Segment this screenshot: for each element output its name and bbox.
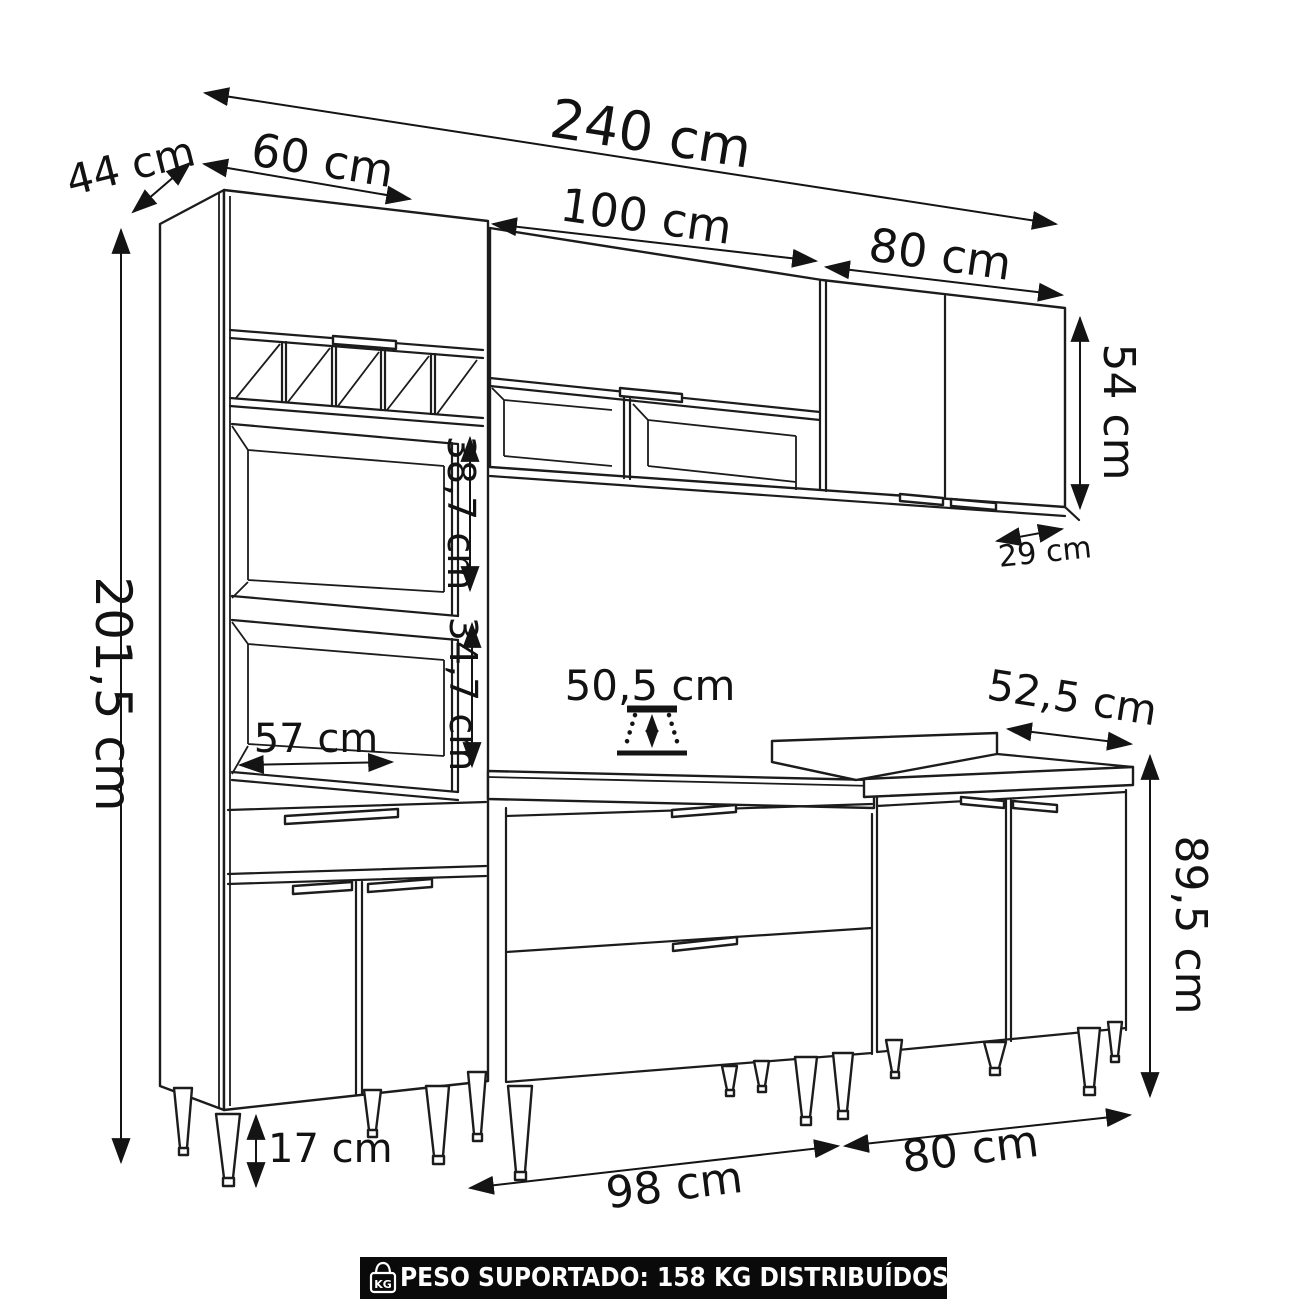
dimension-niche-width: 57 cm [240, 716, 392, 765]
dimension-niche-upper-height: 38,7 cm [439, 436, 483, 591]
dimension-legs-height: 17 cm [256, 1116, 393, 1186]
dimension-total-height: 201,5 cm [84, 230, 142, 1162]
height-adjust-icon [617, 709, 687, 753]
middle-countertop [488, 771, 874, 808]
dim-right-counter-label: 52,5 cm [984, 660, 1160, 735]
dim-total-width-label: 240 cm [546, 87, 756, 181]
dim-niche-lower-label: 34,7 cm [441, 617, 485, 772]
kg-icon-text: KG [374, 1278, 392, 1291]
right-door-handle-right [1013, 801, 1057, 812]
dim-niche-width-label: 57 cm [254, 716, 379, 762]
dimension-base-height: 89,5 cm [1150, 756, 1216, 1096]
backsplash [772, 733, 997, 780]
dimension-right-counter-depth: 52,5 cm [984, 660, 1160, 744]
tall-cabinet-side-panel [160, 190, 224, 1110]
dimension-wall-height: 54 cm [1080, 318, 1144, 508]
dim-total-height-label: 201,5 cm [84, 576, 142, 811]
middle-drawer-splits [506, 804, 872, 952]
supported-weight-text: PESO SUPORTADO: 158 KG DISTRIBUÍDOS [400, 1263, 949, 1293]
dim-wall-height-label: 54 cm [1093, 343, 1144, 480]
right-body [877, 790, 1126, 1052]
dimension-tall-depth: 44 cm [61, 126, 200, 212]
dimension-base-right-width: 80 cm [845, 1115, 1130, 1183]
dimension-wall-depth: 29 cm [997, 529, 1094, 575]
diagram-canvas: 240 cm 44 cm 60 cm 100 cm 80 cm 54 cm 29… [0, 0, 1300, 1300]
dim-base-mid-width-label: 98 cm [603, 1152, 745, 1219]
dim-tall-depth-label: 44 cm [61, 126, 200, 205]
dim-base-right-width-label: 80 cm [899, 1116, 1041, 1183]
dim-mid-counter-label: 50,5 cm [565, 661, 736, 710]
middle-drawer-handle-top [672, 805, 736, 817]
dimension-tall-width: 60 cm [204, 122, 410, 199]
tall-cabinet [160, 190, 488, 1186]
dim-wall-depth-label: 29 cm [997, 530, 1094, 575]
dim-base-height-label: 89,5 cm [1165, 835, 1216, 1014]
dim-legs-height-label: 17 cm [268, 1126, 393, 1172]
dim-tall-width-label: 60 cm [248, 122, 398, 198]
dim-niche-upper-label: 38,7 cm [439, 436, 483, 591]
right-door-split [1006, 800, 1011, 1041]
dimension-niche-lower-height: 34,7 cm [441, 617, 485, 772]
kg-weight-icon: KG [366, 1260, 400, 1296]
dimension-mid-counter-depth: 50,5 cm [565, 661, 736, 753]
right-legs [886, 1022, 1122, 1095]
kitchen-dimension-diagram: 240 cm 44 cm 60 cm 100 cm 80 cm 54 cm 29… [0, 0, 1300, 1300]
dim-wall-right-width-label: 80 cm [866, 217, 1015, 290]
base-cabinet-middle [468, 771, 874, 1180]
supported-weight-banner: KG PESO SUPORTADO: 158 KG DISTRIBUÍDOS [360, 1257, 947, 1299]
